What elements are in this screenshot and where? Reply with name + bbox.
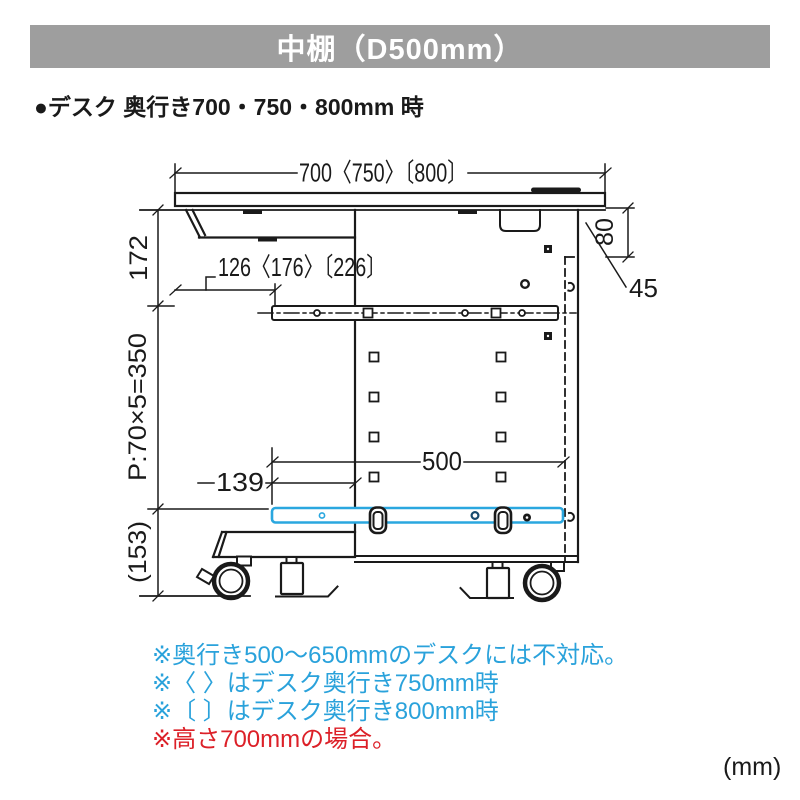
dim-top-width-label: 700〈750〉〔800〕	[299, 158, 467, 188]
left-caster	[197, 557, 251, 599]
footnote-line: ※〈 〉はデスク奥行き750mm時	[152, 670, 628, 698]
right-caster	[525, 562, 564, 600]
page: 中棚（D500mm） ●デスク 奥行き700・750・800mm 時	[0, 0, 800, 800]
middle-shelf	[272, 508, 563, 534]
footnote-line: ※奥行き500〜650mmのデスクには不対応。	[152, 642, 628, 670]
dim-right-overhang-label: 45	[629, 273, 658, 303]
dim-shelf-offset-label: 139	[216, 467, 264, 497]
right-adjuster-foot	[461, 562, 514, 598]
dim-left-upper-label: 172	[125, 235, 153, 281]
rear-bracket	[500, 210, 540, 231]
footnote-line: ※〔 〕はデスク奥行き800mm時	[152, 698, 628, 726]
left-adjuster-foot	[276, 557, 338, 597]
dim-right-upper-label: 80	[591, 218, 619, 246]
panel-fasteners	[521, 245, 574, 521]
desk-top	[175, 193, 605, 206]
base-frame	[213, 532, 578, 562]
footnote-line: ※高さ700mmの場合。	[152, 726, 628, 754]
dim-inset-label: 126〈176〉〔226〕	[218, 252, 386, 282]
dim-shelf-depth-label: 500	[422, 446, 462, 476]
keyboard-tray	[186, 210, 355, 238]
brake-lever	[197, 569, 214, 584]
dim-left-pitch-label: P:70×5=350	[124, 333, 152, 481]
dim-left-lower-label: (153)	[124, 521, 152, 583]
footnotes: ※奥行き500〜650mmのデスクには不対応。 ※〈 〉はデスク奥行き750mm…	[152, 642, 628, 754]
unit-label: (mm)	[723, 753, 781, 782]
cable-grommet	[531, 188, 581, 193]
